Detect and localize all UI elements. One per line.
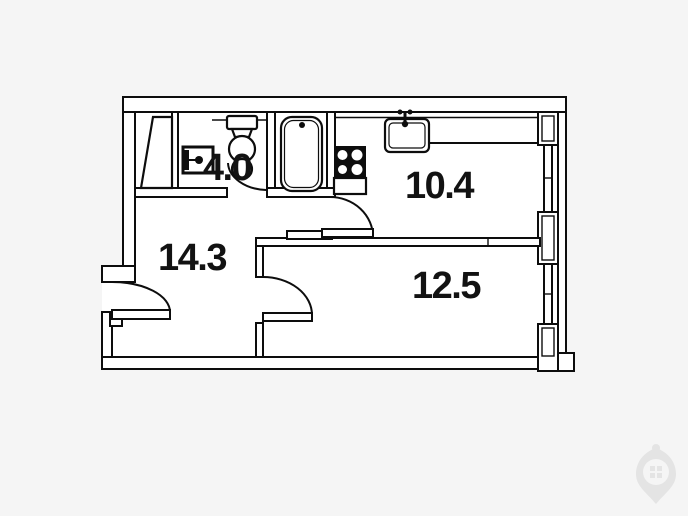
floor-plan-canvas: 4.0 10.4 14.3 12.5	[0, 0, 688, 516]
room-area-label-kitchen: 10.4	[405, 167, 473, 205]
room-area-label-wc: 4.0	[203, 149, 251, 187]
bathtub-icon	[281, 117, 322, 191]
room-area-label-living-room: 12.5	[412, 267, 480, 305]
stove-icon	[334, 146, 366, 194]
floor-plan-drawing	[0, 0, 688, 516]
developer-logo-watermark	[632, 442, 680, 508]
window-room	[544, 264, 552, 324]
window-kitchen	[544, 145, 552, 212]
room-area-label-hallway: 14.3	[158, 239, 226, 277]
